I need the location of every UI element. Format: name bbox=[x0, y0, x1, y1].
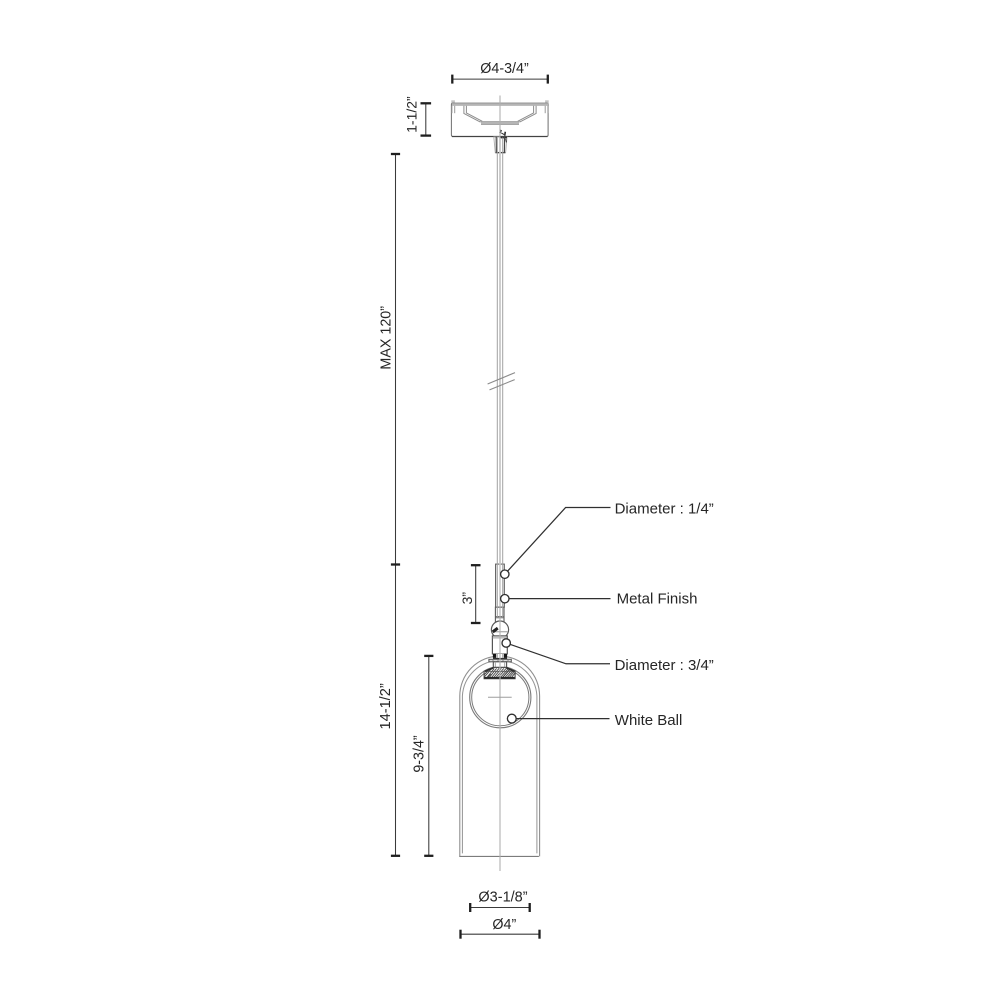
svg-text:Metal Finish: Metal Finish bbox=[617, 591, 698, 608]
svg-text:1-1/2”: 1-1/2” bbox=[404, 96, 420, 133]
svg-text:9-3/4”: 9-3/4” bbox=[412, 735, 428, 773]
svg-text:Ø4”: Ø4” bbox=[492, 917, 516, 933]
svg-text:Ø3-1/8”: Ø3-1/8” bbox=[478, 890, 527, 906]
svg-text:White Ball: White Ball bbox=[615, 712, 683, 729]
svg-text:Diameter : 3/4”: Diameter : 3/4” bbox=[615, 657, 714, 674]
svg-text:14-1/2”: 14-1/2” bbox=[378, 683, 394, 729]
svg-text:Ø4-3/4”: Ø4-3/4” bbox=[480, 61, 529, 77]
svg-text:MAX 120”: MAX 120” bbox=[378, 306, 394, 370]
svg-text:Diameter : 1/4”: Diameter : 1/4” bbox=[615, 501, 714, 518]
svg-text:3”: 3” bbox=[459, 592, 475, 605]
